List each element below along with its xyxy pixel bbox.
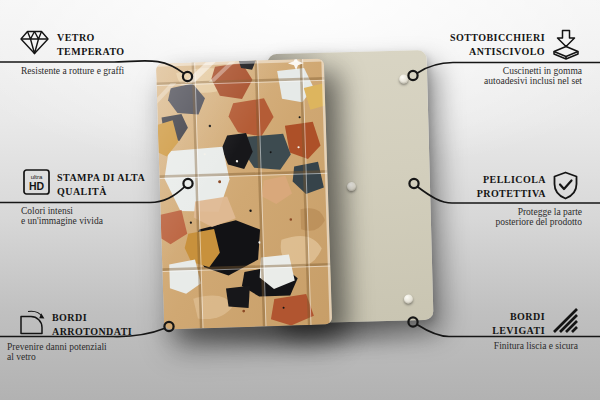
svg-text:HD: HD: [29, 180, 45, 192]
callout-title-line: PROTETTIVA: [477, 187, 546, 201]
callout-desc: Colori intensi e un'immagine vivida: [21, 206, 103, 226]
rubber-pad: [399, 74, 408, 83]
callout-title-line: BORDI: [492, 310, 545, 324]
diamond-icon: [19, 29, 50, 56]
anti-slip-pad-icon: [552, 29, 580, 61]
coaster-front-panel: [156, 58, 332, 329]
callout-title-line: PELLICOLA: [477, 173, 546, 187]
callout-title-line: ARROTONDATI: [52, 325, 132, 339]
callout-title-line: LEVIGATI: [492, 324, 545, 338]
callout-desc: Protegge la parte posteriore del prodott…: [495, 207, 582, 227]
callout-title-line: SOTTOBICCHIERI: [450, 31, 545, 45]
callout-tempered-glass: VETRO TEMPERATO: [19, 29, 125, 58]
callout-title-line: STAMPA DI ALTA: [57, 171, 145, 185]
callout-rounded-corners: BORDI ARROTONDATI: [18, 309, 132, 338]
polished-edge-icon: [552, 308, 579, 334]
callout-protective-film: PELLICOLA PROTETTIVA: [477, 171, 578, 200]
rubber-pad: [347, 182, 356, 191]
ultra-hd-icon: ultra HD: [23, 169, 50, 195]
callout-desc: Finitura liscia e sicura: [494, 341, 578, 351]
callout-title-line: ANTISCIVOLO: [450, 45, 545, 59]
callout-title-line: TEMPERATO: [57, 45, 125, 59]
shield-check-icon: [553, 171, 578, 200]
callout-polished-edges: BORDI LEVIGATI: [492, 308, 579, 337]
rubber-pad: [404, 294, 413, 303]
callout-title-line: BORDI: [52, 311, 132, 325]
product-infographic: VETRO TEMPERATO Resistente a rotture e g…: [0, 0, 600, 400]
callout-print-quality: ultra HD STAMPA DI ALTA QUALITÀ: [23, 169, 145, 198]
callout-desc: Prevenire danni potenziali al vetro: [7, 342, 107, 362]
callout-desc: Resistente a rotture e graffi: [21, 66, 124, 76]
callout-title-line: VETRO: [57, 31, 125, 45]
callout-desc: Cuscinetti in gomma autoadesivi inclusi …: [484, 66, 582, 86]
callout-title-line: QUALITÀ: [57, 185, 145, 199]
terrazzo-pattern: [156, 58, 332, 329]
callout-anti-slip: SOTTOBICCHIERI ANTISCIVOLO: [450, 29, 580, 61]
rounded-corner-icon: [18, 309, 45, 336]
